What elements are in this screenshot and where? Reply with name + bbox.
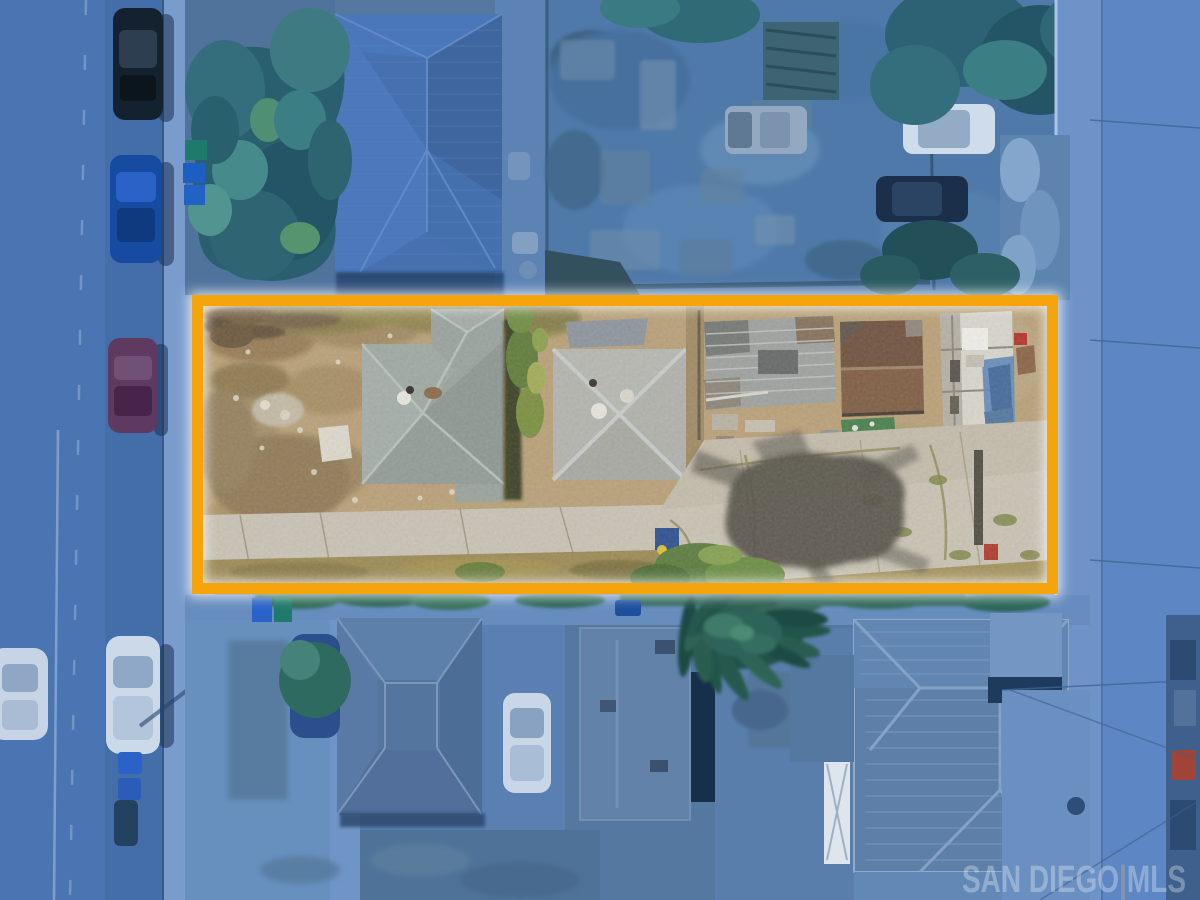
svg-text:SAN DIEGO|MLS: SAN DIEGO|MLS xyxy=(962,859,1186,900)
